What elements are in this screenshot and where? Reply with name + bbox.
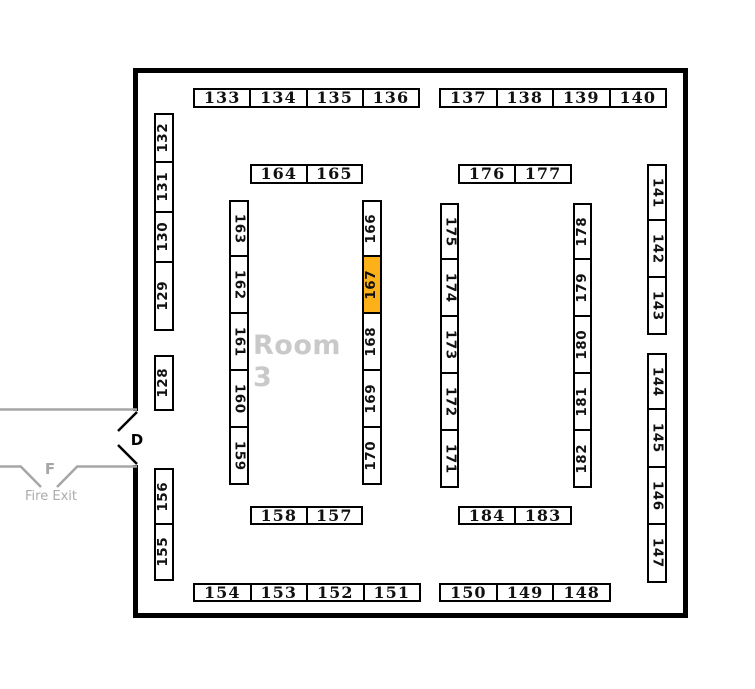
booth-150[interactable]: 150 xyxy=(439,583,498,602)
booth-164[interactable]: 164 xyxy=(250,164,308,184)
booth-number-label: 151 xyxy=(374,585,410,601)
booth-group-inner_pair_bottom_left: 158157 xyxy=(250,506,363,525)
booth-165[interactable]: 165 xyxy=(308,164,364,184)
booth-number-label: 142 xyxy=(650,234,664,264)
booth-group-bottom_right_row: 150149148 xyxy=(439,583,611,602)
booth-number-label: 179 xyxy=(576,273,590,303)
booth-number-label: 156 xyxy=(157,482,171,512)
booth-group-right_wall_lower: 144145146147 xyxy=(647,353,667,583)
booth-161[interactable]: 161 xyxy=(229,314,249,371)
booth-146[interactable]: 146 xyxy=(647,468,667,525)
booth-number-label: 130 xyxy=(157,222,171,252)
booth-group-inner_col_left_a: 163162161160159 xyxy=(229,200,249,485)
booth-131[interactable]: 131 xyxy=(154,163,174,213)
booth-number-label: 147 xyxy=(650,538,664,568)
booth-number-label: 141 xyxy=(650,178,664,208)
booth-group-inner_col_right_a: 175174173172171 xyxy=(440,203,459,488)
booth-166[interactable]: 166 xyxy=(362,200,382,257)
booth-number-label: 148 xyxy=(563,585,599,601)
booth-number-label: 178 xyxy=(576,217,590,247)
booth-number-label: 144 xyxy=(650,367,664,397)
booth-number-label: 136 xyxy=(373,90,409,106)
booth-number-label: 134 xyxy=(260,90,296,106)
booth-135[interactable]: 135 xyxy=(308,88,364,108)
booth-number-label: 135 xyxy=(316,90,352,106)
booth-number-label: 157 xyxy=(316,508,352,524)
room-outline xyxy=(133,68,688,618)
floorplan-canvas: Room 3 D F Fire Exit 1331341351361371381… xyxy=(0,0,755,689)
booth-151[interactable]: 151 xyxy=(365,583,422,602)
booth-141[interactable]: 141 xyxy=(647,164,667,221)
booth-179[interactable]: 179 xyxy=(573,260,592,317)
booth-number-label: 182 xyxy=(576,444,590,474)
booth-group-inner_pair_bottom_right: 184183 xyxy=(458,506,572,525)
booth-group-inner_col_left_b: 166167168169170 xyxy=(362,200,382,485)
booth-number-label: 150 xyxy=(450,585,486,601)
booth-number-label: 163 xyxy=(232,214,246,244)
booth-number-label: 149 xyxy=(507,585,543,601)
booth-number-label: 175 xyxy=(443,217,457,247)
booth-number-label: 140 xyxy=(620,90,656,106)
booth-group-left_wall_upper: 132131130129 xyxy=(154,113,174,331)
booth-number-label: 173 xyxy=(443,330,457,360)
booth-134[interactable]: 134 xyxy=(251,88,307,108)
booth-number-label: 176 xyxy=(469,166,505,182)
booth-number-label: 168 xyxy=(365,327,379,357)
booth-129[interactable]: 129 xyxy=(154,263,174,331)
booth-number-label: 181 xyxy=(576,387,590,417)
booth-number-label: 172 xyxy=(443,387,457,417)
booth-number-label: 131 xyxy=(157,172,171,202)
booth-number-label: 174 xyxy=(443,273,457,303)
booth-number-label: 155 xyxy=(157,537,171,567)
booth-group-top_right_row: 137138139140 xyxy=(439,88,667,108)
booth-number-label: 159 xyxy=(232,441,246,471)
booth-group-left_wall_lower: 156155 xyxy=(154,468,174,581)
booth-number-label: 161 xyxy=(232,327,246,357)
booth-142[interactable]: 142 xyxy=(647,221,667,278)
booth-number-label: 143 xyxy=(650,291,664,321)
booth-number-label: 171 xyxy=(443,444,457,474)
booth-174[interactable]: 174 xyxy=(440,260,459,317)
booth-number-label: 145 xyxy=(650,423,664,453)
booth-number-label: 153 xyxy=(261,585,297,601)
booth-153[interactable]: 153 xyxy=(252,583,309,602)
booth-159[interactable]: 159 xyxy=(229,428,249,485)
fire-exit-text-label: Fire Exit xyxy=(6,489,96,505)
booth-149[interactable]: 149 xyxy=(498,583,555,602)
booth-170[interactable]: 170 xyxy=(362,428,382,485)
booth-number-label: 164 xyxy=(261,166,297,182)
booth-group-top_left_row: 133134135136 xyxy=(193,88,420,108)
booth-number-label: 138 xyxy=(507,90,543,106)
booth-143[interactable]: 143 xyxy=(647,278,667,335)
booth-132[interactable]: 132 xyxy=(154,113,174,163)
booth-148[interactable]: 148 xyxy=(554,583,611,602)
booth-169[interactable]: 169 xyxy=(362,371,382,428)
booth-177[interactable]: 177 xyxy=(516,164,572,184)
booth-group-inner_col_right_b: 178179180181182 xyxy=(573,203,592,488)
booth-130[interactable]: 130 xyxy=(154,213,174,263)
booth-152[interactable]: 152 xyxy=(308,583,365,602)
booth-184[interactable]: 184 xyxy=(458,506,516,525)
booth-number-label: 184 xyxy=(469,508,505,524)
booth-156[interactable]: 156 xyxy=(154,468,174,525)
booth-173[interactable]: 173 xyxy=(440,317,459,374)
booth-140[interactable]: 140 xyxy=(611,88,668,108)
booth-group-bottom_left_row: 154153152151 xyxy=(193,583,421,602)
booth-182[interactable]: 182 xyxy=(573,431,592,488)
booth-128[interactable]: 128 xyxy=(154,355,174,411)
booth-number-label: 129 xyxy=(157,281,171,311)
booth-175[interactable]: 175 xyxy=(440,203,459,260)
booth-168[interactable]: 168 xyxy=(362,314,382,371)
booth-181[interactable]: 181 xyxy=(573,374,592,431)
booth-number-label: 169 xyxy=(365,384,379,414)
booth-172[interactable]: 172 xyxy=(440,374,459,431)
booth-number-label: 162 xyxy=(232,270,246,300)
booth-number-label: 177 xyxy=(525,166,561,182)
booth-group-left_wall_mid: 128 xyxy=(154,355,174,411)
booth-162[interactable]: 162 xyxy=(229,257,249,314)
booth-number-label: 165 xyxy=(316,166,352,182)
booth-163[interactable]: 163 xyxy=(229,200,249,257)
booth-137[interactable]: 137 xyxy=(439,88,498,108)
booth-number-label: 160 xyxy=(232,384,246,414)
booth-number-label: 180 xyxy=(576,330,590,360)
booth-number-label: 137 xyxy=(450,90,486,106)
booth-number-label: 167 xyxy=(365,270,379,300)
booth-number-label: 158 xyxy=(261,508,297,524)
booth-147[interactable]: 147 xyxy=(647,525,667,583)
booth-167[interactable]: 167 xyxy=(362,257,382,314)
booth-145[interactable]: 145 xyxy=(647,410,667,468)
booth-158[interactable]: 158 xyxy=(250,506,308,525)
booth-number-label: 152 xyxy=(317,585,353,601)
booth-number-label: 128 xyxy=(157,368,171,398)
booth-number-label: 146 xyxy=(650,481,664,511)
booth-group-right_wall_upper: 141142143 xyxy=(647,164,667,335)
booth-number-label: 139 xyxy=(563,90,599,106)
booth-136[interactable]: 136 xyxy=(364,88,420,108)
booth-number-label: 132 xyxy=(157,123,171,153)
booth-160[interactable]: 160 xyxy=(229,371,249,428)
booth-155[interactable]: 155 xyxy=(154,525,174,581)
booth-139[interactable]: 139 xyxy=(554,88,611,108)
booth-number-label: 183 xyxy=(525,508,561,524)
booth-number-label: 170 xyxy=(365,441,379,471)
booth-number-label: 133 xyxy=(204,90,240,106)
booth-157[interactable]: 157 xyxy=(308,506,364,525)
booth-144[interactable]: 144 xyxy=(647,353,667,410)
booth-group-inner_pair_top_right: 176177 xyxy=(458,164,572,184)
booth-154[interactable]: 154 xyxy=(193,583,252,602)
booth-180[interactable]: 180 xyxy=(573,317,592,374)
booth-group-inner_pair_top_left: 164165 xyxy=(250,164,363,184)
door-d-label: D xyxy=(126,431,148,450)
booth-176[interactable]: 176 xyxy=(458,164,516,184)
fire-exit-door-label: F xyxy=(38,459,62,479)
booth-178[interactable]: 178 xyxy=(573,203,592,260)
room-name-label: Room 3 xyxy=(253,330,363,362)
booth-171[interactable]: 171 xyxy=(440,431,459,488)
booth-number-label: 166 xyxy=(365,214,379,244)
booth-138[interactable]: 138 xyxy=(498,88,555,108)
booth-183[interactable]: 183 xyxy=(516,506,572,525)
booth-number-label: 154 xyxy=(204,585,240,601)
booth-133[interactable]: 133 xyxy=(193,88,251,108)
